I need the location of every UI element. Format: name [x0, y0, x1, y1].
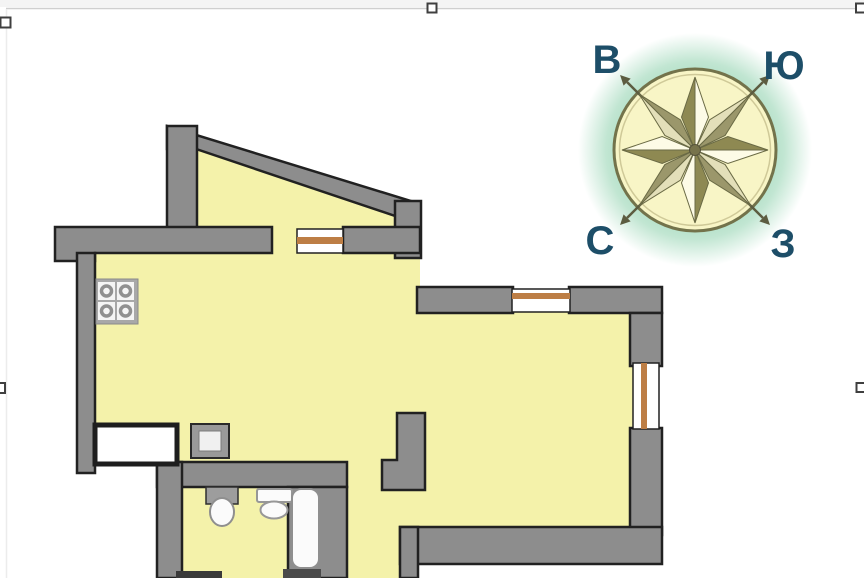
- handle-middle-left[interactable]: [0, 383, 5, 393]
- compass-hub: [690, 145, 701, 156]
- wall-bottom: [400, 527, 662, 564]
- compass-label-north: С: [586, 219, 615, 263]
- handle-top-center[interactable]: [428, 4, 437, 13]
- compass-label-west: З: [770, 222, 795, 266]
- wall-balcony-window-right: [343, 227, 420, 253]
- wall-balcony-left: [167, 126, 197, 232]
- document-canvas: ВЮСЗ: [0, 0, 864, 578]
- compass-label-south: Ю: [763, 44, 804, 88]
- wall-right-upper: [630, 313, 662, 366]
- handle-top-left[interactable]: [1, 18, 11, 28]
- sink-basin: [210, 498, 234, 526]
- floor-plan-image: ВЮСЗ: [0, 0, 864, 578]
- bathtub: [292, 489, 319, 568]
- window-east-frame: [641, 363, 647, 429]
- wall-north-right: [569, 287, 662, 313]
- outside-bottom-left: [76, 466, 157, 578]
- wall-right-lower: [630, 428, 662, 535]
- wall-bathroom-top: [157, 462, 347, 487]
- compass-rose: ВЮСЗ: [578, 33, 812, 267]
- handle-top-right[interactable]: [856, 4, 864, 13]
- wall-entry-left: [400, 527, 418, 578]
- vent-shaft-inner: [199, 431, 221, 451]
- handle-middle-right[interactable]: [857, 383, 864, 392]
- toilet-bowl: [261, 502, 288, 519]
- bathtub-bottom-dark: [283, 569, 321, 578]
- wall-bathroom-bottom-stub: [176, 571, 222, 578]
- compass-label-east: В: [593, 38, 622, 82]
- window-north: [512, 289, 570, 312]
- wall-bathroom-left: [157, 462, 182, 578]
- toilet-tank: [257, 489, 292, 502]
- window-north-frame: [512, 293, 570, 299]
- entry-niche: [95, 425, 177, 464]
- wall-north-left: [417, 287, 513, 313]
- window-balcony-frame: [297, 237, 343, 244]
- wall-outer-left: [77, 253, 95, 473]
